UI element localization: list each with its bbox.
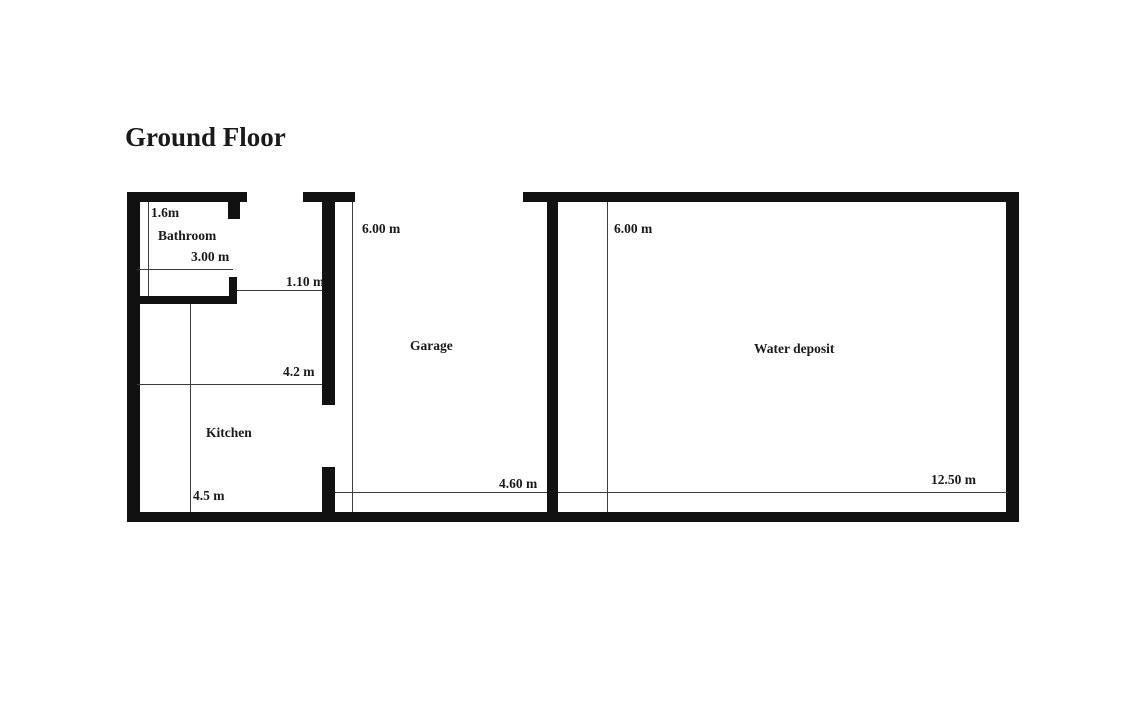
dimension-line-bathroom-width (137, 269, 233, 270)
wall-bathroom-bottom (127, 296, 237, 304)
dimension-label-bathroom-width: 3.00 m (191, 250, 229, 264)
dimension-line-garage-depth (352, 202, 353, 512)
wall-kitchen-garage-upper (322, 202, 335, 405)
dimension-label-kitchen-depth: 4.5 m (193, 489, 225, 503)
wall-garage-water-divider (547, 202, 558, 517)
dimension-label-door-opening: 1.10 m (286, 275, 324, 289)
wall-bathroom-door-jamb-top (228, 202, 240, 219)
dimension-line-water-deposit-width (558, 492, 1008, 493)
dimension-line-kitchen-depth (190, 304, 191, 512)
wall-top-kitchen-garage (303, 192, 355, 202)
wall-exterior-right (1006, 192, 1019, 522)
room-label-water-deposit: Water deposit (754, 342, 834, 356)
floor-plan: Ground Floor 1.6m 3.00 m 1.10 m 4.2 m 4.… (0, 0, 1127, 720)
dimension-line-water-deposit-depth (607, 202, 608, 512)
wall-exterior-bottom (127, 512, 1019, 522)
dimension-line-bathroom-depth (148, 202, 149, 296)
wall-bathroom-door-jamb-bottom (229, 277, 237, 296)
room-label-garage: Garage (410, 339, 453, 353)
dimension-line-door-opening (237, 290, 322, 291)
dimension-label-garage-width: 4.60 m (499, 477, 537, 491)
dimension-label-bathroom-depth: 1.6m (151, 206, 179, 220)
page-title: Ground Floor (125, 124, 286, 151)
room-label-bathroom: Bathroom (158, 229, 216, 243)
dimension-line-kitchen-width (137, 384, 322, 385)
room-label-kitchen: Kitchen (206, 426, 252, 440)
wall-exterior-left (127, 192, 140, 522)
wall-top-bathroom (127, 192, 247, 202)
dimension-label-kitchen-width: 4.2 m (283, 365, 315, 379)
dimension-line-garage-width (335, 492, 547, 493)
wall-top-water-deposit (523, 192, 1019, 202)
dimension-label-garage-depth: 6.00 m (362, 222, 400, 236)
wall-kitchen-garage-lower (322, 467, 335, 517)
dimension-label-water-deposit-width: 12.50 m (931, 473, 976, 487)
dimension-label-water-deposit-depth: 6.00 m (614, 222, 652, 236)
